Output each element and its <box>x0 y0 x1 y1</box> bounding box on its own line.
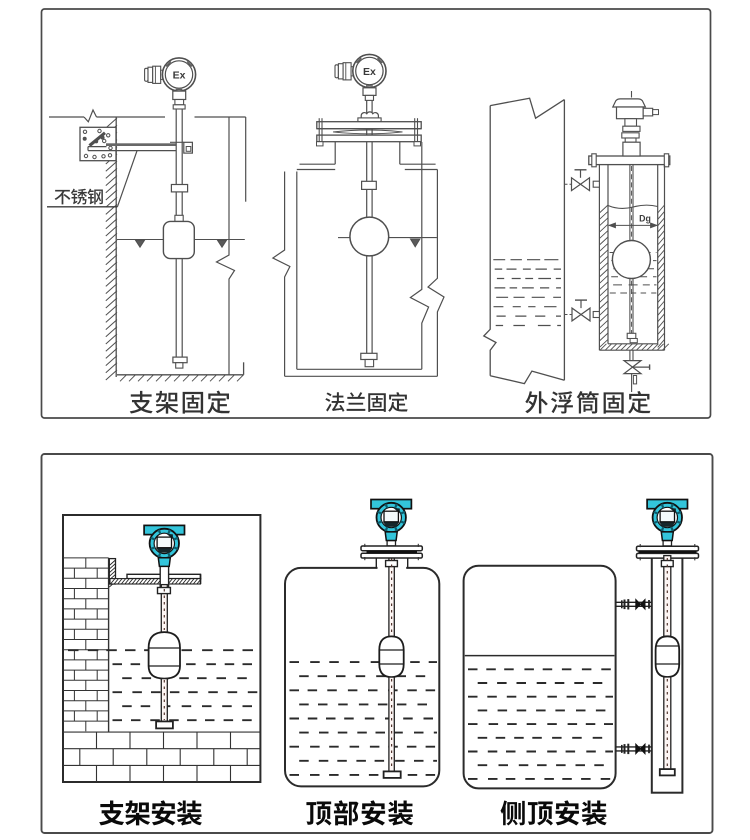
svg-text:Dg: Dg <box>639 214 651 224</box>
svg-text:Ex: Ex <box>363 66 376 78</box>
svg-text:Ex: Ex <box>173 69 186 81</box>
